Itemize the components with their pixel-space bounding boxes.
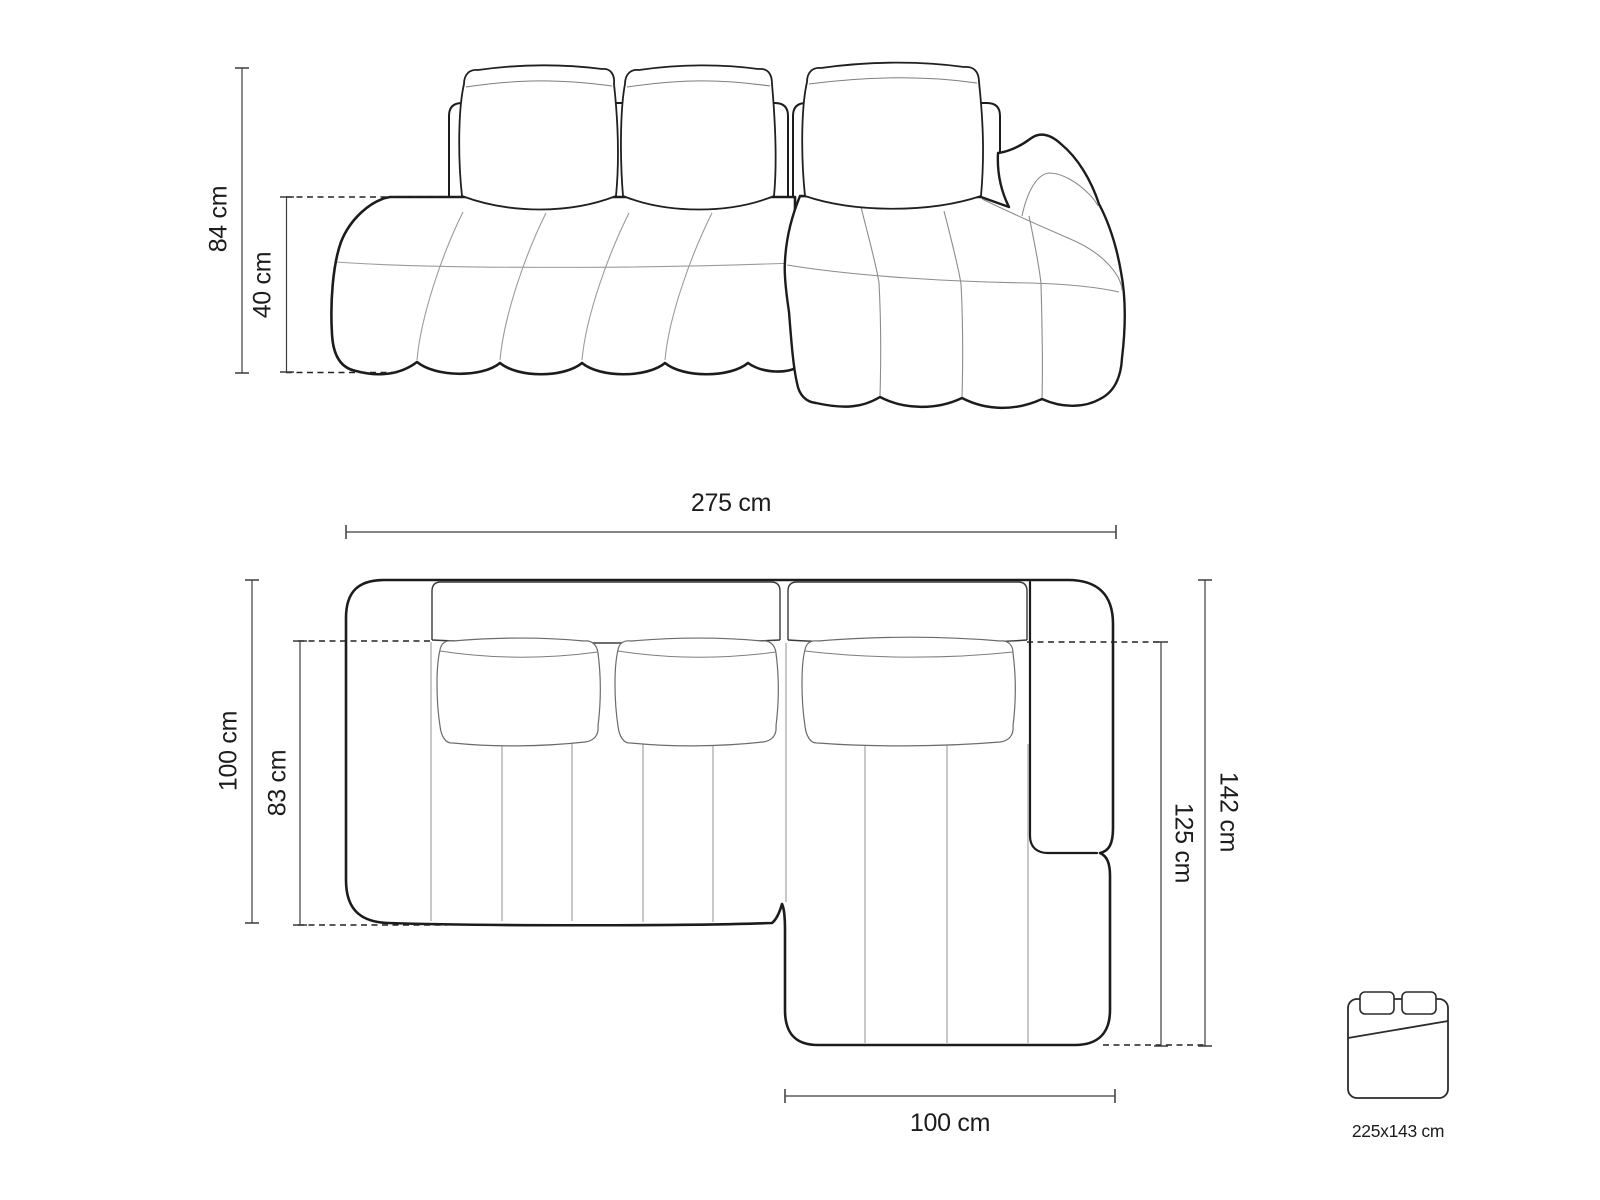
bed-fold-line	[1348, 1021, 1448, 1038]
front-view: 84 cm 40 cm	[205, 63, 1125, 408]
top-side-depth-label: 100 cm	[215, 711, 243, 791]
top-chaise-width-label: 100 cm	[910, 1109, 990, 1137]
front-total-height-label: 84 cm	[205, 186, 233, 253]
top-width-label: 275 cm	[691, 489, 771, 517]
top-seat-depth-label: 83 cm	[264, 750, 292, 817]
sleeping-area-pictogram: 225x143 cm	[1348, 992, 1448, 1141]
top-seat-cushions	[437, 637, 1015, 746]
bed-pillow-right-icon	[1402, 992, 1436, 1014]
front-pillow-2	[621, 65, 776, 209]
top-view: 275 cm 100 cm 83 cm 142 cm 125 cm 100 cm	[215, 489, 1243, 1137]
sleeping-area-size-label: 225x143 cm	[1352, 1121, 1444, 1141]
front-seat-body	[331, 197, 795, 374]
front-pillow-1	[459, 65, 618, 209]
sofa-dimension-sheet: 84 cm 40 cm	[0, 0, 1600, 1200]
bed-pillow-left-icon	[1360, 992, 1394, 1014]
top-total-depth-label: 142 cm	[1214, 772, 1242, 852]
top-chaise-depth-label: 125 cm	[1169, 803, 1197, 883]
front-pillows	[459, 63, 983, 210]
diagram-svg: 84 cm 40 cm	[0, 0, 1600, 1200]
front-pillow-3	[802, 63, 983, 209]
front-seat-height-label: 40 cm	[249, 252, 277, 319]
